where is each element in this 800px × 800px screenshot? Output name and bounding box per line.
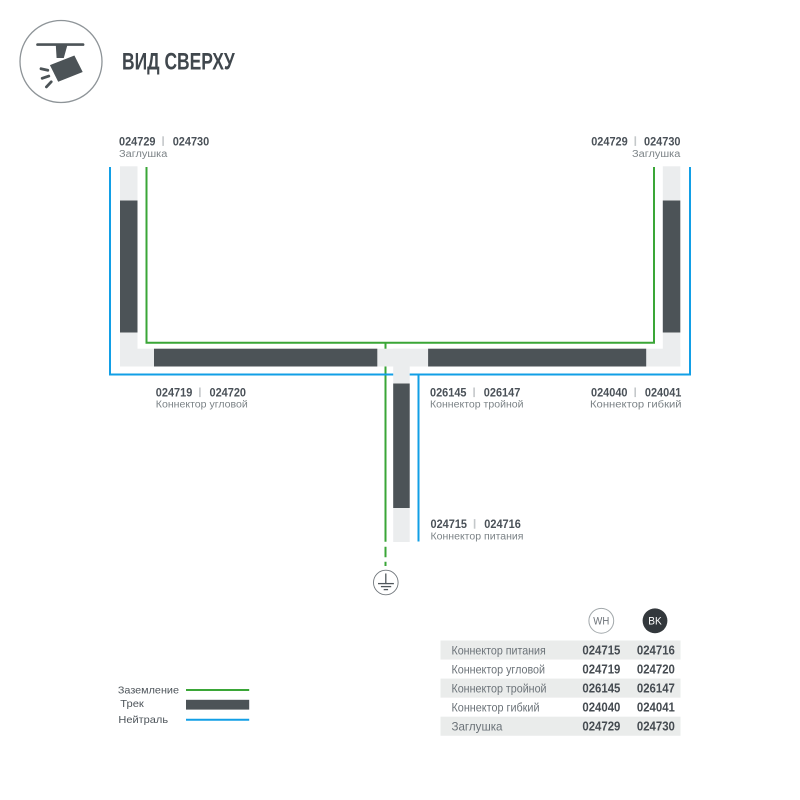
svg-text:024719: 024719 xyxy=(156,388,193,400)
svg-text:Заглушка: Заглушка xyxy=(119,149,168,160)
svg-text:024715: 024715 xyxy=(431,519,468,531)
svg-text:024041: 024041 xyxy=(645,388,682,400)
svg-text:Коннектор угловой: Коннектор угловой xyxy=(452,663,546,677)
svg-text:Коннектор тройной: Коннектор тройной xyxy=(430,400,524,411)
svg-text:026145: 026145 xyxy=(430,388,467,400)
svg-text:024729: 024729 xyxy=(582,720,620,734)
svg-text:024720: 024720 xyxy=(637,663,675,677)
svg-text:024729: 024729 xyxy=(119,136,156,148)
svg-text:Заглушка: Заглушка xyxy=(452,720,503,734)
svg-text:Коннектор угловой: Коннектор угловой xyxy=(156,400,248,411)
svg-text:024730: 024730 xyxy=(173,136,210,148)
svg-text:WH: WH xyxy=(593,616,609,628)
svg-text:Коннектор гибкий: Коннектор гибкий xyxy=(590,399,682,411)
svg-text:024716: 024716 xyxy=(484,519,521,531)
svg-text:Коннектор питания: Коннектор питания xyxy=(452,644,546,658)
svg-text:026147: 026147 xyxy=(484,388,521,400)
svg-text:024720: 024720 xyxy=(210,388,247,400)
svg-text:Нейтраль: Нейтраль xyxy=(118,714,168,726)
svg-text:024040: 024040 xyxy=(591,388,628,400)
svg-text:BK: BK xyxy=(648,616,662,628)
svg-text:026145: 026145 xyxy=(582,682,620,696)
svg-text:024729: 024729 xyxy=(591,136,628,148)
svg-text:Коннектор гибкий: Коннектор гибкий xyxy=(452,701,540,715)
svg-text:Трек: Трек xyxy=(120,698,144,710)
svg-text:Коннектор питания: Коннектор питания xyxy=(431,532,524,543)
svg-text:024041: 024041 xyxy=(637,701,675,715)
svg-text:024716: 024716 xyxy=(637,644,675,658)
svg-text:024730: 024730 xyxy=(637,720,675,734)
svg-text:ВИД СВЕРХУ: ВИД СВЕРХУ xyxy=(122,49,236,76)
svg-text:026147: 026147 xyxy=(637,682,675,696)
svg-text:Заглушка: Заглушка xyxy=(632,149,681,160)
svg-text:Заземление: Заземление xyxy=(118,684,179,696)
svg-text:024719: 024719 xyxy=(582,663,620,677)
svg-text:Коннектор тройной: Коннектор тройной xyxy=(452,682,547,696)
svg-text:024730: 024730 xyxy=(644,136,681,148)
svg-text:024715: 024715 xyxy=(582,644,620,658)
svg-text:024040: 024040 xyxy=(582,701,620,715)
